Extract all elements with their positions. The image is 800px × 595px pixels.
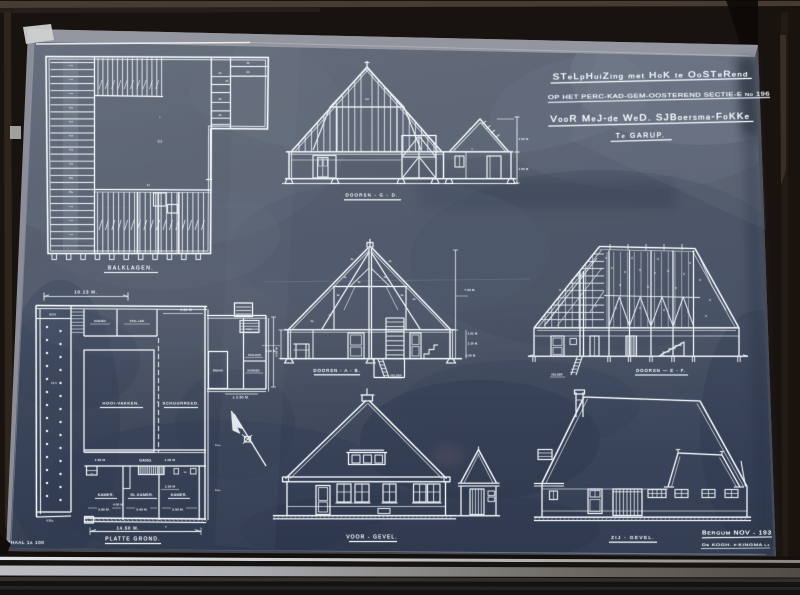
svg-text:4b: 4b xyxy=(218,113,222,117)
svg-text:45a: 45a xyxy=(69,136,74,138)
svg-text:45a: 45a xyxy=(69,206,74,208)
svg-text:7.60 M.: 7.60 M. xyxy=(464,288,475,292)
svg-text:45a: 45a xyxy=(69,220,74,222)
svg-text:4b: 4b xyxy=(218,97,222,101)
svg-text:45a: 45a xyxy=(69,192,74,194)
svg-text:2.20 M.: 2.20 M. xyxy=(468,342,479,346)
svg-text:3.80 M.: 3.80 M. xyxy=(98,508,110,512)
svg-text:1.50 M: 1.50 M xyxy=(95,458,106,462)
svg-text:4c: 4c xyxy=(147,183,151,187)
svg-text:SL.KAMER.: SL.KAMER. xyxy=(130,493,153,497)
svg-text:z50m: z50m xyxy=(215,489,221,492)
svg-text:KOEIEN: KOEIEN xyxy=(94,319,106,323)
svg-text:DOORSN - A - B.: DOORSN - A - B. xyxy=(313,368,360,373)
svg-text:45a: 45a xyxy=(69,234,74,236)
svg-text:N: N xyxy=(469,127,471,131)
svg-text:4b: 4b xyxy=(246,70,250,74)
svg-text:PAKHO: PAKHO xyxy=(213,369,223,373)
svg-text:4d: 4d xyxy=(365,97,369,101)
svg-text:10.13 M.: 10.13 M. xyxy=(74,290,97,295)
svg-text:CHAAL 1A 100: CHAAL 1A 100 xyxy=(7,540,45,545)
svg-text:ZIJ - GEVEL.: ZIJ - GEVEL. xyxy=(611,535,655,541)
svg-text:HOKKEN: HOKKEN xyxy=(247,369,259,373)
svg-text:SCHUURREED.: SCHUURREED. xyxy=(162,401,199,406)
svg-text:STALHOK: STALHOK xyxy=(248,353,261,357)
svg-text:1.00 M: 1.00 M xyxy=(165,458,176,462)
svg-text:10.5: 10.5 xyxy=(51,381,57,385)
svg-text:BALKLAGEN.: BALKLAGEN. xyxy=(108,266,154,272)
svg-text:2.81 M.: 2.81 M. xyxy=(468,332,479,336)
svg-text:DE KOGH. P.KINGMA Lz: DE KOGH. P.KINGMA Lz xyxy=(702,543,770,547)
svg-text:4b: 4b xyxy=(225,79,229,83)
svg-text:GANG.: GANG. xyxy=(139,459,153,463)
svg-text:4.50 M: 4.50 M xyxy=(180,308,192,312)
svg-text:45a: 45a xyxy=(69,107,74,109)
svg-text:0.60 M.: 0.60 M. xyxy=(466,354,477,358)
svg-text:45a: 45a xyxy=(69,164,74,166)
svg-text:VOOR - GEVEL.: VOOR - GEVEL. xyxy=(346,535,398,541)
svg-text:4.00 M: 4.00 M xyxy=(113,503,123,507)
svg-text:45a: 45a xyxy=(69,65,74,67)
svg-text:45a: 45a xyxy=(69,121,74,123)
svg-text:z50m: z50m xyxy=(215,444,221,447)
svg-text:HOOI-VAKKEN.: HOOI-VAKKEN. xyxy=(103,401,140,406)
svg-text:14.50 M.: 14.50 M. xyxy=(117,526,140,531)
svg-text:DOORSN - G - D.: DOORSN - G - D. xyxy=(346,193,399,198)
svg-text:KELDER: KELDER xyxy=(390,375,401,378)
svg-text:STAL-LEN: STAL-LEN xyxy=(130,319,145,323)
svg-text:1.80 M.: 1.80 M. xyxy=(519,167,530,171)
svg-text:3.40 M.: 3.40 M. xyxy=(136,508,148,512)
svg-text:KAMER.: KAMER. xyxy=(98,493,115,497)
svg-text:DOORSN — E - F.: DOORSN — E - F. xyxy=(636,368,686,373)
svg-text:45a: 45a xyxy=(69,178,74,180)
svg-text:KELDER: KELDER xyxy=(551,374,562,377)
svg-text:KAMER.: KAMER. xyxy=(171,493,188,497)
svg-text:PLATTE GROND.: PLATTE GROND. xyxy=(105,537,161,543)
svg-text:45a: 45a xyxy=(69,93,74,95)
svg-text:45a: 45a xyxy=(69,150,74,152)
svg-text:4.50 M.: 4.50 M. xyxy=(519,137,530,141)
svg-text:2.20 M: 2.20 M xyxy=(165,485,176,489)
svg-text:C1: C1 xyxy=(158,140,163,144)
svg-text:3.50 M.: 3.50 M. xyxy=(172,508,184,512)
svg-text:Te GARUP.: Te GARUP. xyxy=(616,132,666,140)
svg-text:4.50 M.: 4.50 M. xyxy=(266,349,277,353)
svg-text:4b: 4b xyxy=(218,71,222,75)
svg-text:45a: 45a xyxy=(69,79,74,81)
svg-text:BOX: BOX xyxy=(49,313,56,317)
svg-text:4b: 4b xyxy=(246,61,250,65)
svg-text:± 2.50 M.: ± 2.50 M. xyxy=(233,396,249,400)
svg-text:TRAP: TRAP xyxy=(246,328,253,331)
